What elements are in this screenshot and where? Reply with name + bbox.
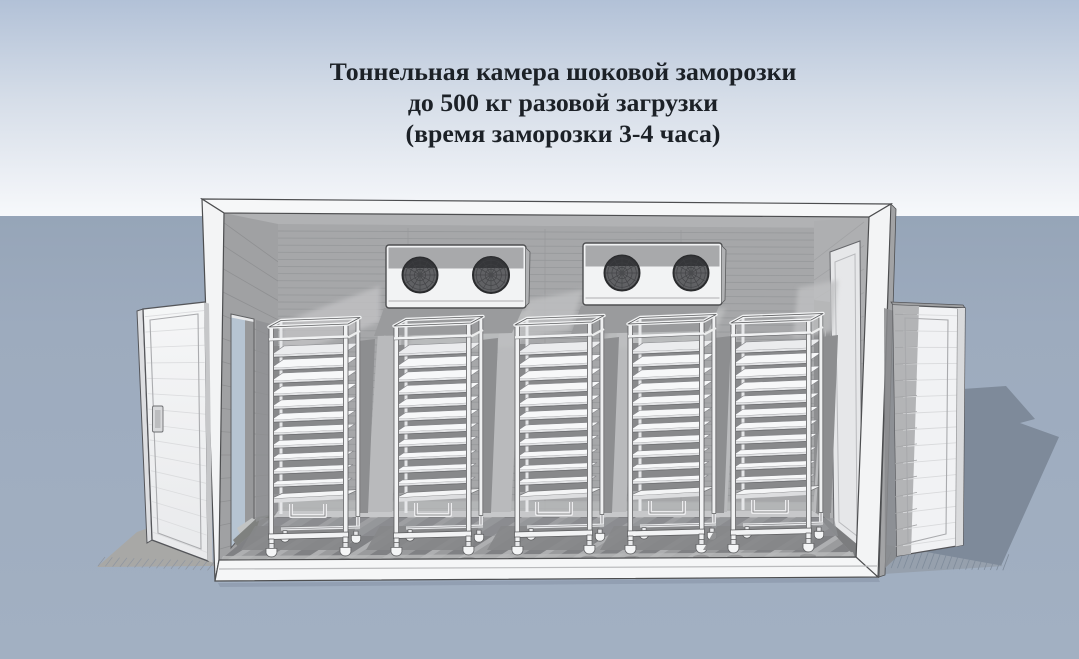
svg-text:до 500 кг разовой загрузки: до 500 кг разовой загрузки (408, 88, 718, 117)
svg-text:(время заморозки 3-4 часа): (время заморозки 3-4 часа) (405, 119, 720, 148)
svg-text:Тоннельная камера шоковой замо: Тоннельная камера шоковой заморозки (330, 57, 797, 86)
